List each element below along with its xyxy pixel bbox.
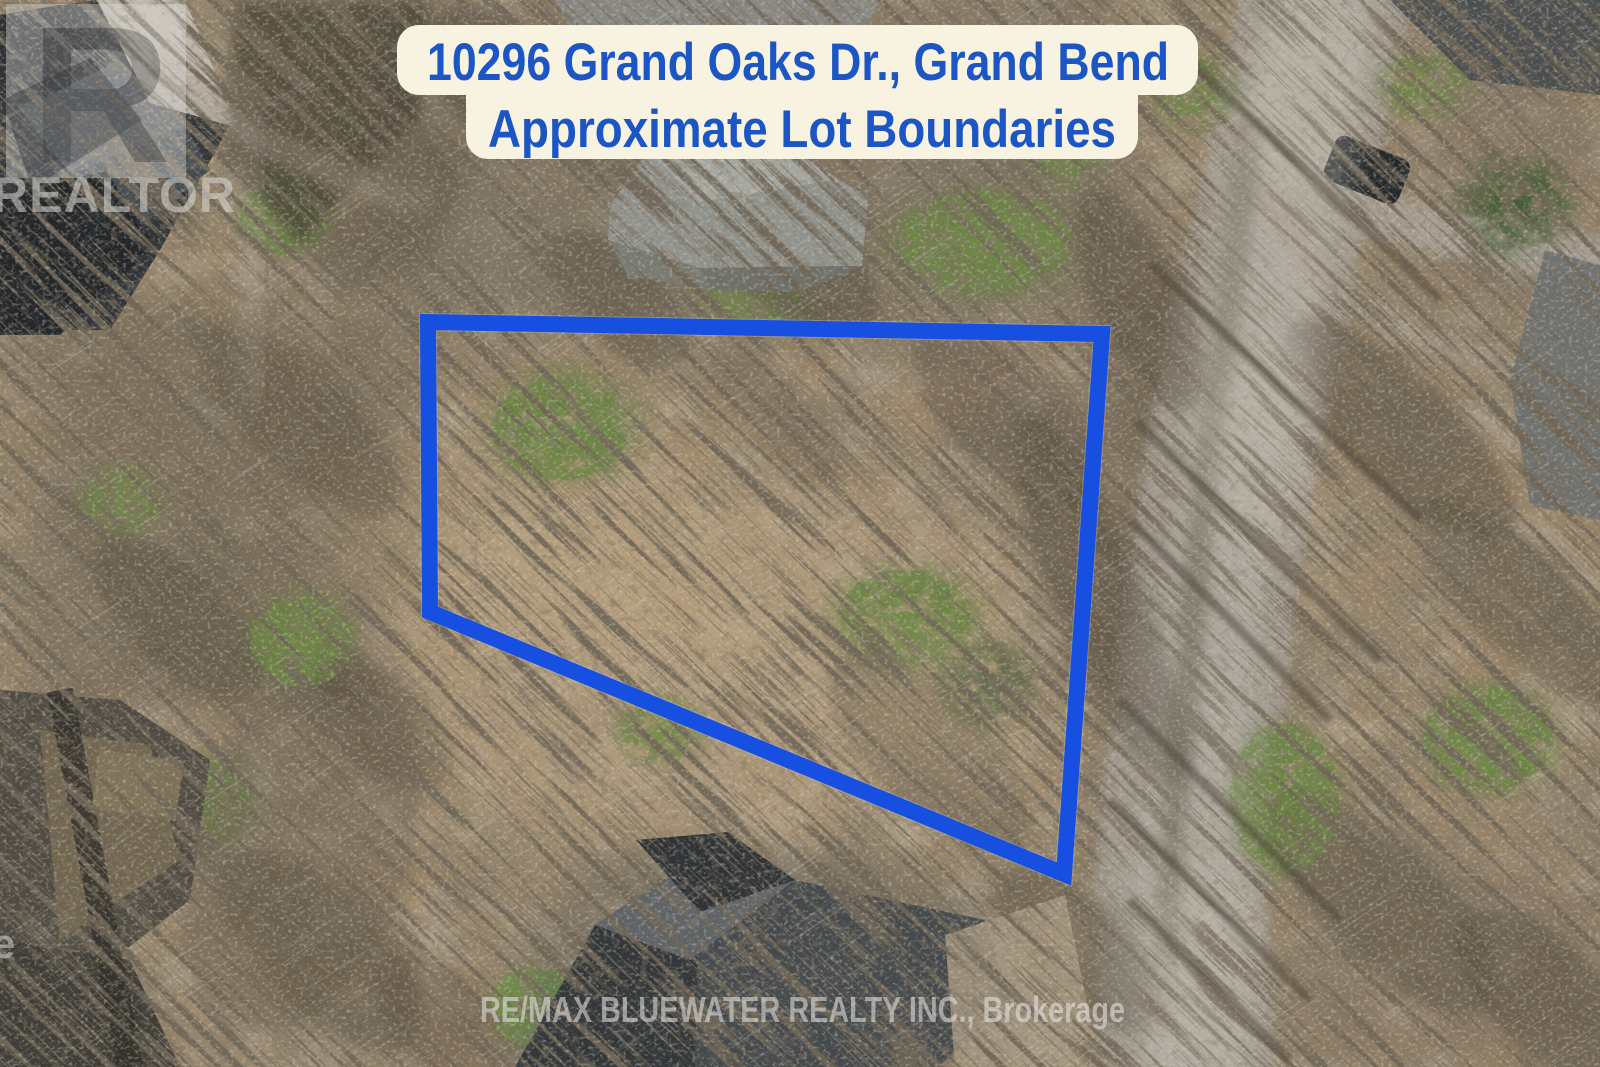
svg-text:Approximate Lot Boundaries: Approximate Lot Boundaries: [488, 100, 1116, 159]
svg-text:10296 Grand Oaks Dr., Grand Be: 10296 Grand Oaks Dr., Grand Bend: [427, 33, 1169, 92]
svg-text:REALTOR: REALTOR: [0, 167, 236, 223]
svg-text:RE/MAX BLUEWATER REALTY INC.,: RE/MAX BLUEWATER REALTY INC., Brokerage: [480, 989, 1125, 1030]
svg-text:e: e: [0, 920, 15, 967]
